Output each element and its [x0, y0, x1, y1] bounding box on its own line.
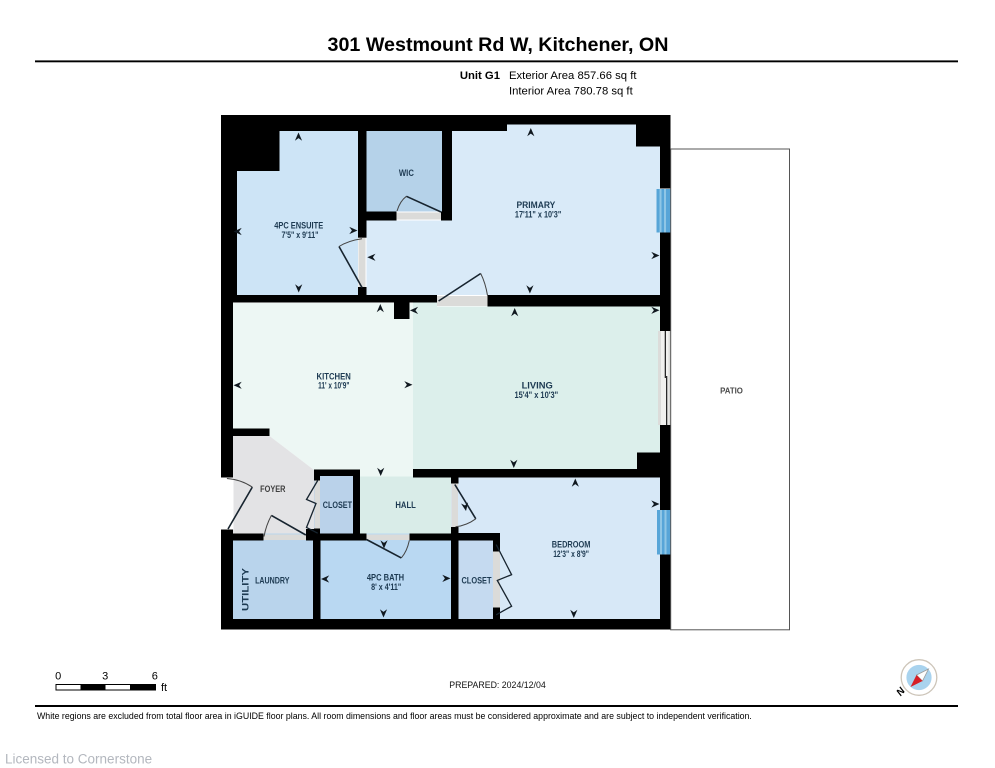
svg-text:UTILITY: UTILITY	[240, 568, 250, 611]
svg-text:0: 0	[55, 671, 61, 683]
svg-text:11' x 10'9": 11' x 10'9"	[318, 381, 349, 392]
svg-text:Interior Area 780.78 sq ft: Interior Area 780.78 sq ft	[509, 85, 634, 97]
svg-text:3: 3	[102, 671, 108, 683]
svg-text:LAUNDRY: LAUNDRY	[255, 575, 290, 586]
svg-text:7'5" x 9'11": 7'5" x 9'11"	[282, 230, 319, 241]
svg-text:Unit G1: Unit G1	[460, 70, 500, 82]
svg-text:12'3" x 8'9": 12'3" x 8'9"	[553, 549, 589, 560]
svg-text:ft: ft	[161, 682, 167, 694]
svg-text:CLOSET: CLOSET	[323, 500, 352, 511]
svg-text:15'4" x 10'3": 15'4" x 10'3"	[514, 390, 558, 401]
svg-text:CLOSET: CLOSET	[461, 576, 491, 587]
svg-text:8' x 4'11": 8' x 4'11"	[371, 582, 401, 593]
svg-text:PATIO: PATIO	[720, 386, 743, 395]
svg-text:WIC: WIC	[399, 168, 414, 179]
svg-text:Licensed to Cornerstone: Licensed to Cornerstone	[5, 752, 152, 767]
svg-text:White regions are excluded fro: White regions are excluded from total fl…	[37, 711, 752, 721]
svg-text:Exterior Area 857.66 sq ft: Exterior Area 857.66 sq ft	[509, 70, 637, 82]
svg-text:301 Westmount Rd W, Kitchener,: 301 Westmount Rd W, Kitchener, ON	[328, 34, 669, 56]
svg-text:17'11" x 10'3": 17'11" x 10'3"	[515, 209, 561, 220]
svg-text:PREPARED: 2024/12/04: PREPARED: 2024/12/04	[449, 680, 546, 691]
svg-text:6: 6	[152, 671, 158, 683]
svg-text:FOYER: FOYER	[260, 484, 285, 495]
svg-text:HALL: HALL	[395, 500, 416, 511]
